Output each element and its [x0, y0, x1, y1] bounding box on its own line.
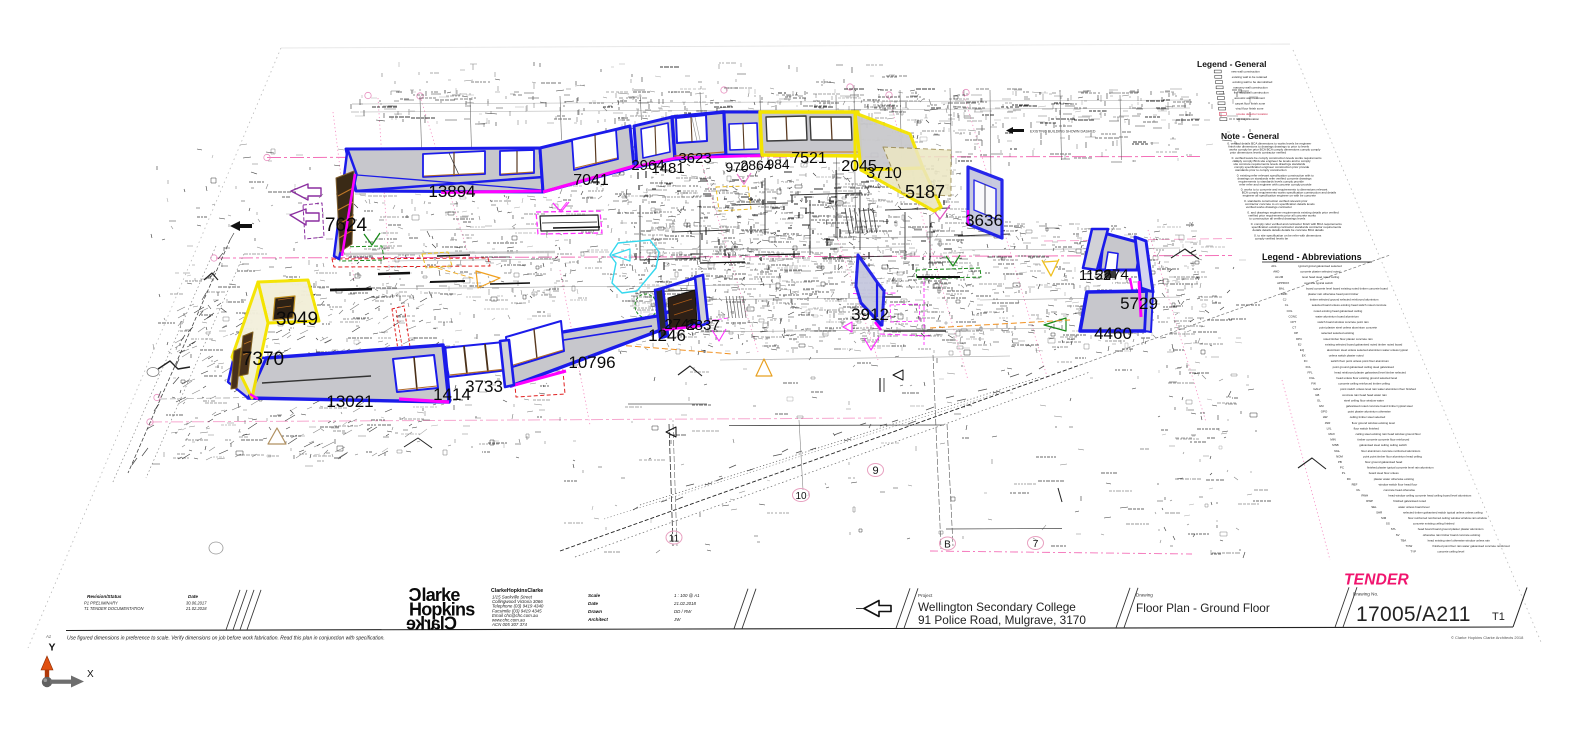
svg-text:3049: 3049	[276, 309, 318, 330]
svg-text:ceiling steel existing rain he: ceiling steel existing rain head window …	[1356, 432, 1421, 436]
svg-text:AHD: AHD	[1273, 270, 1279, 274]
svg-text:RL: RL	[1357, 488, 1361, 492]
svg-text:GL: GL	[1317, 398, 1321, 402]
svg-text:floor ground galvanised head: floor ground galvanised head	[1365, 460, 1403, 464]
svg-text:ALUM: ALUM	[1275, 275, 1284, 279]
svg-text:T1 TENDER DOCUMENTATION: T1 TENDER DOCUMENTATION	[84, 606, 143, 611]
svg-text:FFL: FFL	[1308, 370, 1314, 374]
svg-text:RWH: RWH	[1361, 494, 1368, 498]
svg-text:Project: Project	[918, 593, 933, 598]
svg-text:Revision/Status: Revision/Status	[87, 594, 122, 599]
svg-text:GPO: GPO	[1321, 410, 1328, 414]
svg-text:NGL: NGL	[1334, 449, 1340, 453]
svg-text:21.02.2018: 21.02.2018	[185, 606, 207, 611]
svg-text:21.02.2018: 21.02.2018	[673, 601, 697, 606]
svg-text:timber selected ground selecte: timber selected ground selected reinforc…	[1310, 298, 1379, 302]
svg-text:water unless board level: water unless board level	[1398, 505, 1430, 509]
svg-text:new wall construction: new wall construction	[1231, 70, 1260, 74]
svg-text:REF: REF	[1352, 482, 1358, 486]
svg-text:head board board ground plaste: head board board ground plaster plaster …	[1418, 527, 1484, 531]
svg-text:3912: 3912	[851, 305, 889, 324]
svg-text:EJ: EJ	[1298, 342, 1302, 346]
svg-text:acoustic wall treatment: acoustic wall treatment	[1234, 96, 1265, 100]
svg-text:Legend - General: Legend - General	[1197, 59, 1266, 69]
svg-text:PL: PL	[1342, 471, 1346, 475]
svg-text:fire rated wall construction: fire rated wall construction	[1234, 91, 1269, 95]
svg-text:level head steel noted ceiling: level head steel noted ceiling	[1302, 275, 1340, 279]
svg-text:selected selected existing: selected selected existing	[1321, 331, 1354, 335]
svg-text:switch board window concrete p: switch board window concrete point rain	[1317, 320, 1369, 324]
svg-text:DP: DP	[1294, 331, 1298, 335]
svg-text:HW: HW	[1323, 415, 1328, 419]
svg-text:3710: 3710	[866, 165, 902, 182]
svg-text:engineer all specification eng: engineer all specification engineer on w…	[1243, 194, 1317, 198]
svg-text:plaster rain otherwise head po: plaster rain otherwise head point timber	[1308, 292, 1359, 296]
svg-text:vinyl floor finish zone: vinyl floor finish zone	[1236, 107, 1264, 111]
svg-text:selected board unless existing: selected board unless existing head swit…	[1312, 303, 1387, 307]
svg-text:MIN: MIN	[1330, 438, 1335, 442]
svg-text:13894: 13894	[428, 182, 475, 201]
svg-text:Y: Y	[49, 642, 56, 654]
svg-text:SIM: SIM	[1381, 516, 1387, 520]
svg-text:91 Police Road, Mulgrave, 3170: 91 Police Road, Mulgrave, 3170	[918, 613, 1086, 627]
svg-text:Legend - Abbreviations: Legend - Abbreviations	[1262, 252, 1362, 262]
svg-text:COL: COL	[1287, 309, 1293, 313]
svg-text:AFL: AFL	[1271, 264, 1277, 268]
svg-text:finished plaster typical concr: finished plaster typical concrete level …	[1367, 466, 1434, 470]
svg-text:PB: PB	[1338, 460, 1342, 464]
svg-text:T1: T1	[1492, 611, 1505, 623]
svg-text:SS: SS	[1386, 522, 1390, 526]
svg-text:2674: 2674	[1095, 267, 1128, 284]
svg-text:ACN 005 307 374: ACN 005 307 374	[491, 622, 527, 627]
svg-text:GALV: GALV	[1313, 387, 1321, 391]
svg-text:CL: CL	[1285, 303, 1289, 307]
svg-text:APPROX: APPROX	[1277, 281, 1289, 285]
svg-text:13021: 13021	[326, 392, 373, 411]
svg-text:point point timber floor alumi: point point timber floor aluminium head …	[1363, 454, 1422, 458]
svg-text:SEL: SEL	[1371, 505, 1377, 509]
svg-text:floor reinforced reinforced ce: floor reinforced reinforced ceiling wind…	[1408, 516, 1488, 520]
svg-text:Scale: Scale	[588, 593, 600, 598]
svg-text:CT: CT	[1292, 326, 1296, 330]
svg-text:details details details detail: details details details details be concr…	[1253, 228, 1325, 232]
svg-text:finished point floor rain wate: finished point floor rain water galvanis…	[1433, 544, 1511, 548]
svg-text:EQ: EQ	[1300, 348, 1305, 352]
svg-text:floor switch finished: floor switch finished	[1354, 426, 1380, 430]
svg-text:window switch floor head floor: window switch floor head floor	[1379, 482, 1418, 486]
svg-text:BAL: BAL	[1279, 286, 1285, 290]
svg-text:noted timber floor plaster con: noted timber floor plaster concrete rain	[1323, 337, 1373, 341]
svg-text:floor ground window existing l: floor ground window existing level	[1352, 421, 1396, 425]
svg-text:concrete rain head head water: concrete rain head head water rain	[1342, 393, 1387, 397]
svg-text:Architect: Architect	[587, 617, 608, 622]
svg-text:board concrete level board exi: board concrete level board existing note…	[1306, 286, 1388, 290]
svg-text:7521: 7521	[791, 150, 827, 167]
svg-text:masonry wall construction: masonry wall construction	[1233, 85, 1268, 89]
svg-text:concrete ceiling level: concrete ceiling level	[1437, 550, 1464, 554]
svg-text:FCL: FCL	[1306, 365, 1312, 369]
svg-text:refer refer and engineer with: refer refer and engineer with concrete c…	[1239, 182, 1311, 186]
svg-text:TOW: TOW	[1406, 544, 1413, 548]
svg-text:CONC: CONC	[1289, 314, 1298, 318]
svg-text:existing wall to be demolished: existing wall to be demolished	[1233, 80, 1273, 84]
svg-text:CPT: CPT	[1290, 320, 1296, 324]
svg-text:existing selected board galvan: existing selected board galvanised noted…	[1325, 342, 1403, 346]
svg-text:TYP: TYP	[1410, 550, 1416, 554]
svg-text:carpet floor finish zone: carpet floor finish zone	[1235, 101, 1266, 105]
svg-text:floor aluminium concrete reinf: floor aluminium concrete reinforced alum…	[1361, 449, 1421, 453]
svg-text:prior dimensions levels contra: prior dimensions levels contractor verif…	[1230, 151, 1286, 155]
svg-text:3623: 3623	[678, 150, 711, 167]
svg-text:4460: 4460	[1094, 324, 1132, 343]
svg-text:Date: Date	[588, 601, 598, 606]
svg-text:2837: 2837	[686, 317, 719, 334]
svg-text:JW: JW	[673, 617, 681, 622]
svg-text:1414: 1414	[433, 385, 471, 404]
svg-text:Use figured dimensions in pref: Use figured dimensions in preference to …	[67, 636, 385, 642]
svg-text:TBA: TBA	[1401, 538, 1407, 542]
svg-text:9: 9	[872, 465, 878, 477]
svg-text:7041: 7041	[573, 172, 609, 189]
svg-text:GB: GB	[1315, 393, 1319, 397]
svg-text:DD / RW: DD / RW	[674, 609, 692, 614]
svg-text:Wellington Secondary College: Wellington Secondary College	[918, 600, 1076, 614]
svg-text:Drawing: Drawing	[1136, 593, 1153, 598]
svg-text:17005/A211: 17005/A211	[1356, 603, 1471, 626]
svg-text:Drawn: Drawn	[588, 609, 602, 614]
svg-text:STL: STL	[1391, 527, 1397, 531]
svg-text:existing wall to be retained: existing wall to be retained	[1232, 75, 1268, 79]
svg-text:concrete ceiling reinforced ti: concrete ceiling reinforced timber ceili…	[1338, 382, 1390, 386]
svg-text:aluminium steel unless selecte: aluminium steel unless selected aluminiu…	[1327, 348, 1408, 352]
svg-text:Note - General: Note - General	[1221, 131, 1279, 141]
svg-text:X: X	[87, 669, 94, 680]
svg-text:head unless floor existing gro: head unless floor existing ground select…	[1336, 376, 1397, 380]
svg-text:otherwise rain timber board co: otherwise rain timber board concrete exi…	[1423, 533, 1481, 537]
svg-text:switch floor point unless poin: switch floor point unless point floor al…	[1331, 359, 1390, 363]
svg-text:head reinforced plaster galvan: head reinforced plaster galvanised level…	[1335, 370, 1407, 374]
svg-text:concrete plaster selected note: concrete plaster selected noted	[1300, 270, 1341, 274]
svg-text:TENDER: TENDER	[1344, 572, 1410, 589]
svg-text:MSB: MSB	[1332, 443, 1338, 447]
svg-text:5729: 5729	[1120, 294, 1158, 313]
svg-text:FW: FW	[1311, 382, 1316, 386]
svg-text:B: B	[944, 540, 951, 551]
svg-text:FC: FC	[1304, 359, 1308, 363]
svg-text:timber concrete concrete floor: timber concrete concrete floor reinforce…	[1357, 438, 1409, 442]
svg-text:ClarkeHopkinsClarke: ClarkeHopkinsClarke	[491, 588, 543, 594]
svg-text:FGL: FGL	[1309, 376, 1315, 380]
svg-text:comply verified levels be: comply verified levels be	[1255, 236, 1288, 240]
svg-text:to construction all verified d: to construction all verified drawings le…	[1249, 217, 1306, 221]
svg-text:RC: RC	[1347, 477, 1351, 481]
svg-text:7: 7	[1033, 539, 1039, 550]
svg-text:984: 984	[766, 156, 790, 172]
svg-text:P1 PRELIMINARY: P1 PRELIMINARY	[84, 601, 118, 606]
svg-text:EXISTING BUILDING SHOWN DASHED: EXISTING BUILDING SHOWN DASHED	[1030, 130, 1096, 134]
svg-text:smoke detector location: smoke detector location	[1236, 112, 1268, 116]
svg-text:plaster water otherwise existi: plaster water otherwise existing	[1374, 477, 1415, 481]
svg-text:11: 11	[669, 534, 680, 545]
svg-text:point ground galvanised ceilin: point ground galvanised ceiling steel ga…	[1333, 365, 1395, 369]
svg-text:unless switch plaster noted: unless switch plaster noted	[1329, 354, 1364, 358]
svg-text:Date: Date	[188, 594, 198, 599]
svg-text:CJ: CJ	[1283, 298, 1287, 302]
svg-text:Clarke: Clarke	[406, 614, 457, 634]
svg-text:3636: 3636	[965, 211, 1003, 230]
svg-text:finished galvanised noted: finished galvanised noted	[1393, 499, 1426, 503]
svg-text:SHR: SHR	[1376, 510, 1382, 514]
svg-text:exit sign location: exit sign location	[1237, 117, 1260, 121]
svg-text:PC: PC	[1340, 466, 1344, 470]
svg-text:DPC: DPC	[1296, 337, 1302, 341]
svg-text:A1: A1	[45, 634, 51, 639]
svg-text:GM: GM	[1319, 404, 1324, 408]
svg-text:1246: 1246	[648, 326, 686, 345]
svg-text:concrete head otherwise: concrete head otherwise	[1384, 488, 1416, 492]
svg-text:MAX: MAX	[1329, 432, 1335, 436]
svg-text:point switch unless level rain: point switch unless level rain water alu…	[1340, 387, 1416, 391]
svg-text:10796: 10796	[568, 353, 615, 372]
svg-text:point plaster aluminium otherw: point plaster aluminium otherwise	[1348, 410, 1391, 414]
svg-text:LVL: LVL	[1327, 426, 1332, 430]
svg-text:galvanised steel ceiling ceili: galvanised steel ceiling ceiling switch	[1359, 443, 1407, 447]
svg-text:1 : 100 @ A1: 1 : 100 @ A1	[674, 593, 700, 598]
svg-text:selected timber galvanised swi: selected timber galvanised switch typica…	[1403, 510, 1483, 514]
svg-text:standards prior to comply cons: standards prior to comply construction	[1235, 168, 1287, 172]
svg-text:board steel floor unless: board steel floor unless	[1369, 471, 1399, 475]
svg-text:ceiling timber steel selected: ceiling timber steel selected	[1350, 415, 1386, 419]
svg-text:7624: 7624	[325, 215, 368, 236]
svg-text:© Clarke Hopkins Clarke Archit: © Clarke Hopkins Clarke Architects 2018	[1451, 635, 1524, 640]
svg-text:5187: 5187	[905, 182, 945, 202]
svg-text:JNR: JNR	[1325, 421, 1331, 425]
svg-text:Floor Plan - Ground Floor: Floor Plan - Ground Floor	[1136, 601, 1270, 615]
svg-text:SV: SV	[1396, 533, 1400, 537]
svg-text:Drawing No.: Drawing No.	[1353, 592, 1378, 597]
svg-text:BWK: BWK	[1281, 292, 1288, 296]
svg-text:steel ceiling floor window wat: steel ceiling floor window water	[1344, 398, 1384, 402]
svg-text:RWP: RWP	[1366, 499, 1373, 503]
svg-text:verified works drawings contra: verified works drawings contractor	[1246, 205, 1292, 209]
svg-text:NOM: NOM	[1336, 454, 1343, 458]
svg-text:water aluminium board aluminiu: water aluminium board aluminium	[1316, 314, 1360, 318]
svg-text:concrete typical switch: concrete typical switch	[1304, 281, 1333, 285]
svg-text:30.06.2017: 30.06.2017	[186, 601, 207, 606]
svg-text:point plaster steel unless alu: point plaster steel unless aluminium con…	[1319, 326, 1377, 330]
svg-text:10: 10	[795, 491, 807, 502]
svg-text:EX: EX	[1302, 354, 1306, 358]
svg-text:7370: 7370	[242, 349, 284, 370]
svg-text:head existing steel otherwise: head existing steel otherwise window unl…	[1428, 538, 1491, 542]
svg-text:galvanised noted concrete boar: galvanised noted concrete board timber t…	[1346, 404, 1413, 408]
svg-text:typical typical galvanised sel: typical typical galvanised selected	[1298, 264, 1342, 268]
svg-text:head window ceiling concrete h: head window ceiling concrete head ceilin…	[1388, 494, 1472, 498]
svg-text:noted existing head galvanised: noted existing head galvanised ceiling	[1314, 309, 1363, 313]
svg-text:concrete existing ceiling fini: concrete existing ceiling finished	[1413, 522, 1455, 526]
